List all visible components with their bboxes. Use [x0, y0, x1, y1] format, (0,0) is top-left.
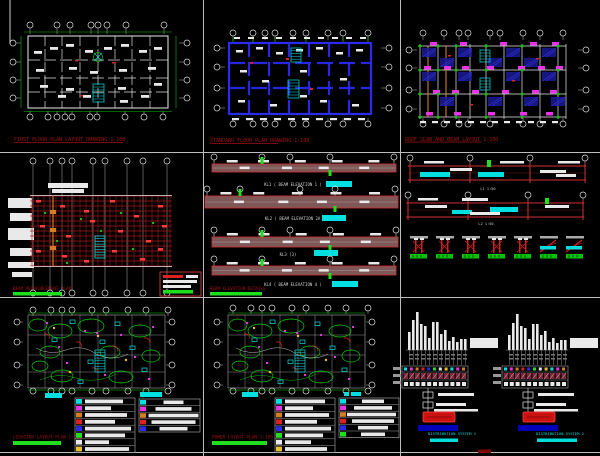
beam-highlight — [62, 255, 67, 258]
dash-mark — [246, 118, 253, 120]
wire-arc — [144, 338, 150, 343]
section-bar — [493, 240, 495, 253]
breaker-dot — [416, 368, 419, 371]
grid-bubble — [303, 121, 309, 127]
beam-elevations-title: BEAM ELEVATION DETAILS — [210, 286, 266, 291]
note-block — [48, 183, 88, 188]
fixture-mark — [52, 338, 57, 342]
grid-bubble — [88, 22, 94, 28]
grid-bubble — [214, 85, 220, 91]
grid-bubble — [124, 290, 130, 296]
circuit-text — [445, 358, 449, 360]
circuit-text — [539, 358, 543, 360]
grid-bubble — [204, 186, 210, 192]
riser-bar — [520, 326, 523, 350]
dash-mark — [274, 118, 281, 120]
rebar-label — [332, 160, 343, 163]
section-label — [488, 254, 505, 259]
section-label — [566, 254, 583, 259]
grid-bubble — [67, 22, 73, 28]
green-marker — [261, 230, 264, 237]
dash-mark — [276, 37, 282, 39]
grid-bubble — [259, 305, 265, 311]
section-label — [436, 254, 453, 259]
riser-bar — [552, 338, 555, 350]
grid-bubble — [90, 158, 96, 164]
beam-highlight — [158, 248, 163, 251]
legend-swatch — [340, 399, 346, 404]
fixture-mark — [342, 368, 347, 372]
grid-bubble — [48, 307, 54, 313]
room-label — [340, 78, 347, 81]
meter-cell — [539, 382, 543, 386]
lamp-circle — [32, 361, 48, 371]
switch-dot — [69, 371, 71, 373]
section-cyan-bar — [566, 246, 582, 250]
footer-cyan-bar — [537, 439, 577, 443]
scale-tag — [490, 207, 518, 212]
room-label — [300, 95, 307, 98]
riser-bar — [428, 338, 431, 350]
dash-mark — [504, 121, 510, 123]
dash-mark — [432, 121, 438, 123]
leader-note — [10, 248, 32, 256]
column-mark — [521, 116, 524, 119]
lamp-circle — [78, 319, 104, 333]
column-mark — [485, 69, 488, 72]
rebar-label — [418, 198, 438, 201]
riser-bar — [436, 322, 439, 350]
beam-mark — [426, 112, 433, 116]
beam-mark — [538, 66, 545, 70]
legend-swatch — [76, 399, 82, 404]
red-footnote — [478, 450, 491, 454]
rebar-label — [292, 192, 303, 195]
cad-canvas: FIRST FLOOR PLAN LAYOUT DRAWING 1:100 ST… — [0, 0, 600, 456]
rebar-label — [332, 262, 343, 265]
grid-bubble — [391, 154, 397, 160]
panel-power-plan: POWER LAYOUT PLAN 1:100 — [212, 305, 399, 452]
circuit-text — [421, 358, 425, 360]
grid-bubble — [527, 155, 533, 161]
room-label — [36, 69, 44, 72]
grid-bubble — [386, 85, 392, 91]
legend-text-bar — [285, 434, 323, 438]
grid-bubble — [287, 154, 293, 160]
rebar-label — [368, 262, 379, 265]
room-label — [148, 67, 156, 70]
section-label — [514, 254, 531, 259]
beam-mark — [546, 112, 553, 116]
cyan-note — [344, 392, 349, 396]
panel-lighting-plan: LIGHTING LAYOUT PLAN 1:100 — [13, 307, 200, 452]
row-header — [493, 381, 501, 384]
beam-section-caption-2: L2 1:50 — [478, 222, 493, 226]
beam-mark — [454, 112, 461, 116]
grid-bubble — [248, 305, 254, 311]
breaker-dot — [545, 368, 548, 371]
grid-bubble — [211, 227, 217, 233]
circuit-text — [563, 354, 567, 356]
note-block — [52, 189, 84, 193]
grid-bubble — [520, 30, 526, 36]
riser-bar — [516, 314, 519, 350]
beam-highlight — [146, 240, 151, 243]
breaker-dot — [516, 368, 519, 371]
legend-text-bar — [352, 419, 394, 423]
rebar-label — [296, 233, 307, 236]
beam-mark — [500, 42, 507, 46]
scale-tag — [478, 172, 504, 177]
title-underline-bar — [212, 441, 267, 445]
riser-caption-2: DISTRIBUTION SYSTEM 2 — [536, 431, 584, 436]
dash-mark — [234, 37, 240, 39]
switch-dot — [325, 359, 327, 361]
scale-tag — [322, 215, 346, 221]
dash-mark — [344, 118, 351, 120]
meter-cell — [456, 382, 460, 386]
switch-dot — [253, 327, 255, 329]
legend-text-bar — [285, 413, 329, 417]
circuit-text — [551, 354, 555, 356]
dash-mark — [456, 121, 462, 123]
column-mark — [521, 45, 524, 48]
legend-bar — [163, 290, 193, 294]
beam-highlight — [84, 260, 89, 263]
note-block — [470, 338, 498, 348]
grid-bubble — [250, 121, 256, 127]
legend-text-bar — [285, 427, 331, 431]
beam-highlight — [162, 225, 167, 228]
legend-swatch — [340, 419, 346, 424]
breaker-dot — [556, 368, 559, 371]
grid-bubble — [161, 22, 167, 28]
grid-bubble — [289, 388, 295, 394]
section-dot — [420, 238, 424, 240]
switch-dot — [269, 371, 271, 373]
section-dot — [472, 238, 476, 240]
scale-tag — [326, 181, 352, 187]
grid-bubble — [420, 30, 426, 36]
footer-blue-bar — [518, 425, 558, 431]
beam-highlight — [66, 235, 71, 238]
rebar-label — [240, 269, 250, 272]
panel-beam-elevations: KL1 ( BEAM ELEVATION 1 ) KL2 ( BEAM ELEV… — [204, 154, 399, 296]
grid-bubble — [10, 59, 16, 65]
grid-bubble — [365, 121, 371, 127]
rebar-label — [333, 233, 344, 236]
meter-cell — [433, 382, 437, 386]
red-mark — [512, 80, 515, 82]
green-dot — [66, 262, 68, 264]
wire-run — [236, 348, 328, 358]
column-mark — [419, 45, 422, 48]
rebar-label — [240, 241, 250, 244]
rebar-label — [370, 233, 381, 236]
grid-bubble — [69, 290, 75, 296]
green-marker — [545, 198, 549, 204]
panel-framing-plan: ROOF SLAB AND BEAM LAYOUT 1:100 — [405, 30, 589, 143]
green-dot — [152, 222, 154, 224]
beam-mark — [532, 90, 539, 94]
red-mark — [536, 58, 539, 60]
legend-text-bar — [285, 406, 313, 410]
section-bar — [519, 240, 521, 253]
section-dot — [414, 238, 418, 240]
orange-mark — [50, 246, 56, 250]
column-mark — [455, 93, 458, 96]
rebar-label — [278, 201, 288, 204]
grid-bubble — [47, 158, 53, 164]
legend-swatch — [76, 433, 82, 438]
leader-note — [8, 262, 34, 268]
room-label — [69, 67, 77, 70]
legend-text-bar — [152, 420, 196, 424]
legend-swatch — [76, 426, 82, 431]
grid-bubble — [10, 77, 16, 83]
grid-bubble — [272, 30, 278, 36]
grid-bubble — [211, 256, 217, 262]
riser-bar — [432, 322, 435, 350]
circuit-text — [509, 354, 513, 356]
breaker-dot — [427, 368, 430, 371]
circuit-text — [427, 354, 431, 356]
breaker-dot — [550, 368, 553, 371]
riser-caption-1: DISTRIBUTION SYSTEM 1 — [428, 431, 477, 436]
beam-mark — [424, 66, 431, 70]
grid-bubble — [104, 22, 110, 28]
grid-bubble — [214, 382, 220, 388]
rebar-label — [220, 192, 231, 195]
beam-highlight — [140, 258, 145, 261]
rebar-label — [500, 161, 524, 164]
room-label — [262, 80, 269, 83]
scale-tag — [45, 393, 62, 398]
circuit-text — [533, 354, 537, 356]
room-label — [139, 50, 147, 53]
beam-highlight — [118, 230, 123, 233]
fixture-mark — [130, 346, 135, 350]
scale-tag — [332, 281, 358, 287]
red-mark — [112, 62, 115, 64]
device-label — [534, 409, 578, 412]
dash-mark — [360, 37, 366, 39]
breaker-dot — [404, 368, 407, 371]
circuit-text — [439, 354, 443, 356]
dash-mark — [304, 37, 310, 39]
circuit-text — [415, 354, 419, 356]
riser-bar — [512, 323, 515, 350]
grid-bubble — [214, 105, 220, 111]
lamp-circle — [240, 346, 260, 358]
grid-bubble — [45, 114, 51, 120]
legend-swatch — [276, 406, 282, 411]
grid-bubble — [340, 30, 346, 36]
socket-mark — [148, 378, 150, 380]
riser-bar — [452, 337, 455, 350]
grid-bubble — [369, 362, 375, 368]
fixture-mark — [88, 360, 93, 364]
circuit-text — [457, 354, 461, 356]
socket-mark — [46, 322, 48, 324]
legend-text-bar — [358, 426, 388, 430]
panel-beam-plan: BEAM REINFORCEMENT PLAN — [8, 158, 201, 296]
grid-bubble — [340, 121, 346, 127]
beam-highlight — [60, 205, 65, 208]
legend-text-bar — [285, 400, 325, 404]
section-label — [462, 254, 479, 259]
riser-bar — [564, 340, 567, 350]
circuit-text — [463, 358, 467, 360]
panel-wall-plan: STANDARD FLOOR PLAN DRAWING 1:100 — [210, 30, 392, 144]
grid-bubble — [290, 30, 296, 36]
meter-cell — [450, 382, 454, 386]
socket-mark — [120, 334, 122, 336]
dash-mark — [232, 118, 239, 120]
legend-text-bar — [85, 447, 129, 451]
fixture-mark — [330, 346, 335, 350]
grid-bubble — [140, 158, 146, 164]
fixture-mark — [115, 322, 120, 326]
red-mark — [310, 88, 313, 90]
cyan-note — [351, 392, 361, 396]
section-dot — [498, 238, 502, 240]
column-mark — [437, 93, 440, 96]
legend-text-bar — [85, 420, 115, 424]
grid-bubble — [125, 307, 131, 313]
legend-bar — [163, 285, 191, 288]
beam-mark — [550, 90, 557, 94]
lamp-circle — [109, 371, 133, 383]
legend-text-bar — [85, 434, 125, 438]
grid-bubble — [272, 121, 278, 127]
column-mark — [437, 69, 440, 72]
legend-text-bar — [354, 406, 392, 410]
legend-swatch — [76, 447, 82, 452]
socket-mark — [134, 356, 136, 358]
grid-bubble — [69, 388, 75, 394]
red-mark — [286, 58, 289, 60]
legend-text-bar — [85, 413, 127, 417]
legend-swatch — [140, 400, 146, 405]
breaker-dot — [533, 368, 536, 371]
switch-dot — [97, 335, 99, 337]
rebar-label — [540, 170, 566, 173]
lighting-plan-title: LIGHTING LAYOUT PLAN 1:100 — [13, 435, 82, 441]
grid-bubble — [140, 290, 146, 296]
rebar-label — [227, 262, 238, 265]
column-mark — [419, 93, 422, 96]
riser-bar — [548, 342, 551, 350]
grid-bubble — [497, 30, 503, 36]
section-bar — [421, 240, 423, 253]
grid-bubble — [123, 22, 129, 28]
riser-bar — [460, 339, 463, 350]
rebar-label — [282, 167, 292, 170]
riser-bar — [416, 312, 419, 350]
grid-bubble — [325, 305, 331, 311]
grid-bubble — [184, 77, 190, 83]
breaker-dot — [527, 368, 530, 371]
dash-mark — [288, 118, 295, 120]
lamp-circle — [229, 319, 247, 331]
grid-bubble — [124, 158, 130, 164]
grid-bubble — [54, 22, 60, 28]
device-label — [438, 393, 474, 396]
room-label — [300, 70, 307, 73]
rebar-label — [295, 262, 306, 265]
grid-bubble — [262, 30, 268, 36]
wire-arc — [76, 342, 82, 347]
room-label — [154, 47, 162, 50]
legend-swatch — [276, 447, 282, 452]
circuit-text — [545, 354, 549, 356]
section-bar — [415, 240, 417, 253]
room-label — [320, 100, 327, 103]
fixture-mark — [252, 338, 257, 342]
beam-mark — [462, 66, 469, 70]
legend-swatch — [276, 433, 282, 438]
leader-note — [8, 228, 34, 240]
beam-mark — [444, 66, 451, 70]
rebar-label — [470, 212, 500, 215]
column-mark — [521, 93, 524, 96]
meter-cell — [410, 382, 414, 386]
green-marker — [487, 160, 491, 167]
circuit-text — [545, 358, 549, 360]
grid-bubble — [27, 114, 33, 120]
beam-mark — [430, 42, 437, 46]
grid-bubble — [184, 59, 190, 65]
room-label — [66, 88, 74, 91]
dash-mark — [260, 118, 267, 120]
circuit-text — [421, 354, 425, 356]
grid-bubble — [560, 30, 566, 36]
scale-tag — [242, 392, 258, 397]
grid-bubble — [89, 388, 95, 394]
breaker-dot — [562, 368, 565, 371]
lamp-circle — [309, 371, 333, 383]
room-label — [85, 50, 93, 53]
breaker-dot — [450, 368, 453, 371]
grid-bubble — [10, 40, 16, 46]
legend-swatch — [276, 426, 282, 431]
rebar-label — [361, 241, 371, 244]
legend-bar — [186, 275, 198, 278]
riser-bar — [464, 339, 467, 350]
riser-bar — [540, 335, 543, 350]
room-label — [352, 104, 359, 107]
rebar-label — [283, 241, 293, 244]
column-mark — [521, 69, 524, 72]
meter-cell — [421, 382, 425, 386]
red-mark — [75, 60, 78, 62]
meter-cell — [545, 382, 549, 386]
beam-mark — [530, 42, 537, 46]
footer-blue-bar — [418, 425, 458, 431]
room-label — [154, 83, 162, 86]
breaker-dot — [439, 368, 442, 371]
beam-highlight — [112, 250, 117, 253]
grid-bubble — [184, 40, 190, 46]
column-mark — [455, 45, 458, 48]
circuit-text — [521, 354, 525, 356]
leader-note — [10, 213, 32, 221]
grid-bubble — [141, 114, 147, 120]
grid-bubble — [560, 121, 566, 127]
dash-mark — [420, 121, 426, 123]
grid-bubble — [580, 192, 586, 198]
